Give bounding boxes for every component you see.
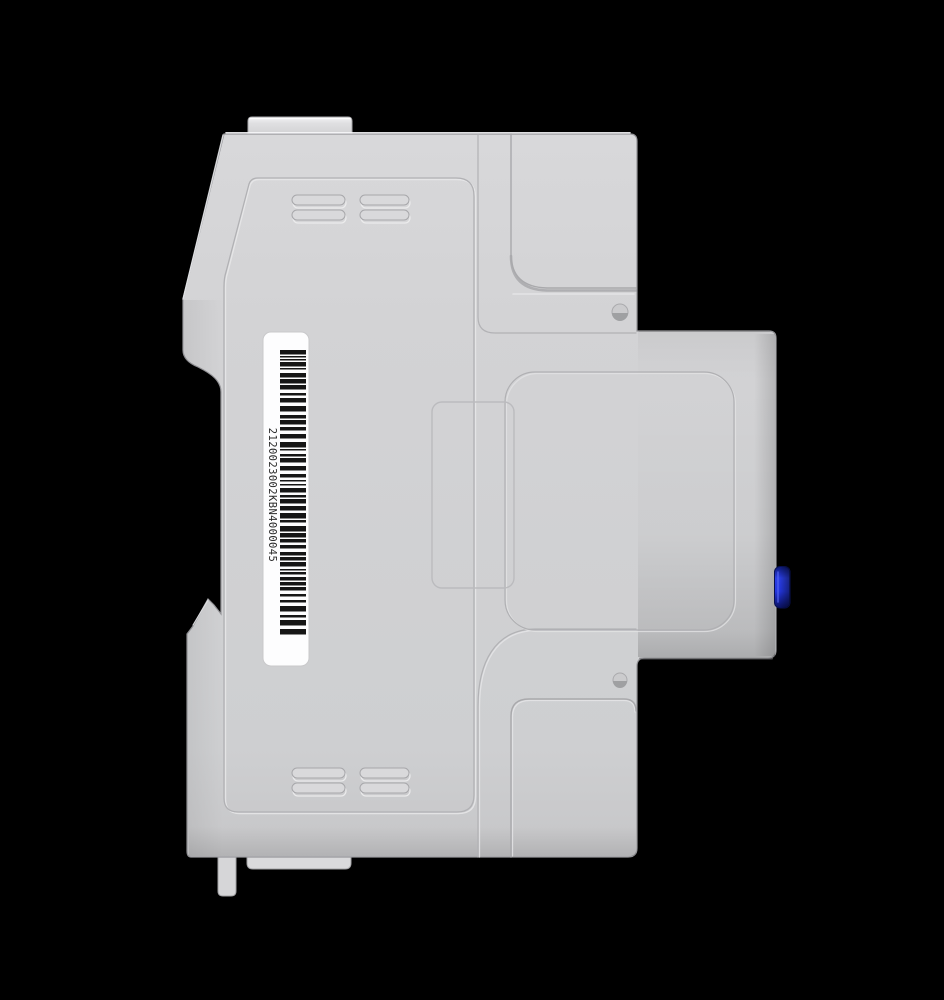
- screw-head-upper: [612, 304, 628, 321]
- vent-slot: [360, 195, 409, 205]
- meter-side-view: 2120023002KBN4000045: [0, 0, 944, 1000]
- vent-slot: [292, 195, 345, 205]
- vent-slot: [360, 768, 409, 778]
- blue-push-button: [775, 567, 791, 609]
- protrusion-right-edge-shading: [754, 334, 775, 656]
- barcode-label: 2120023002KBN4000045: [263, 332, 309, 666]
- vent-slot: [360, 783, 409, 793]
- screw-head-lower: [613, 673, 627, 688]
- vent-slot: [292, 768, 345, 778]
- vent-slot: [360, 210, 409, 220]
- bottom-mount-tab: [247, 857, 351, 869]
- vent-slot: [292, 783, 345, 793]
- body-bottom-shading: [189, 826, 636, 856]
- left-strip-shading: [184, 300, 223, 856]
- device-render: 2120023002KBN4000045: [0, 0, 944, 1000]
- barcode-serial-text: 2120023002KBN4000045: [266, 428, 278, 562]
- vent-slot: [292, 210, 345, 220]
- bottom-mount-pin: [218, 857, 236, 896]
- top-mount-tab: [248, 117, 352, 134]
